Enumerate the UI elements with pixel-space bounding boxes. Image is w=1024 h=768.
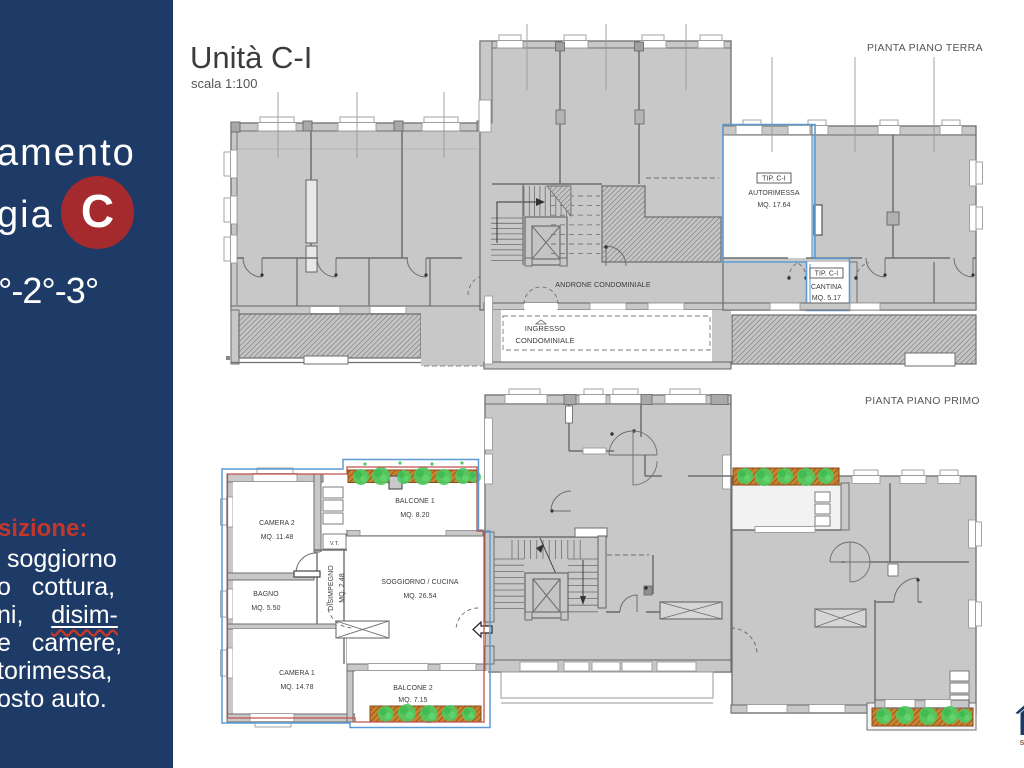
svg-text:MQ. 5.17: MQ. 5.17 xyxy=(812,295,841,302)
svg-text:BALCONE 1: BALCONE 1 xyxy=(395,498,435,505)
svg-text:V.T.: V.T. xyxy=(330,541,340,547)
svg-text:MQ. 8.20: MQ. 8.20 xyxy=(400,512,429,519)
svg-text:MQ. 2.48: MQ. 2.48 xyxy=(339,573,346,603)
svg-text:AUTORIMESSA: AUTORIMESSA xyxy=(748,190,799,197)
svg-text:INGRESSO: INGRESSO xyxy=(525,324,565,333)
svg-text:TIP. C-I: TIP. C-I xyxy=(815,271,839,278)
svg-text:CONDOMINIALE: CONDOMINIALE xyxy=(515,336,574,345)
svg-text:MQ. 26.54: MQ. 26.54 xyxy=(403,593,436,600)
svg-text:CAMERA 1: CAMERA 1 xyxy=(279,670,315,677)
svg-text:MQ. 7.15: MQ. 7.15 xyxy=(398,697,427,704)
svg-text:TIP. C-I: TIP. C-I xyxy=(762,176,786,183)
svg-text:MQ. 11.48: MQ. 11.48 xyxy=(261,534,294,541)
svg-text:DISIMPEGNO: DISIMPEGNO xyxy=(328,565,335,611)
svg-text:BAGNO: BAGNO xyxy=(253,591,279,598)
svg-text:MQ. 5.50: MQ. 5.50 xyxy=(251,605,280,612)
svg-text:BALCONE 2: BALCONE 2 xyxy=(393,685,433,692)
svg-text:ANDRONE CONDOMINIALE: ANDRONE CONDOMINIALE xyxy=(555,280,651,289)
svg-text:CAMERA 2: CAMERA 2 xyxy=(259,520,295,527)
svg-text:SOGGIORNO / CUCINA: SOGGIORNO / CUCINA xyxy=(381,579,459,586)
svg-text:MQ. 17.64: MQ. 17.64 xyxy=(757,202,790,209)
svg-text:MQ. 14.78: MQ. 14.78 xyxy=(280,684,313,691)
svg-text:CANTINA: CANTINA xyxy=(811,284,842,291)
